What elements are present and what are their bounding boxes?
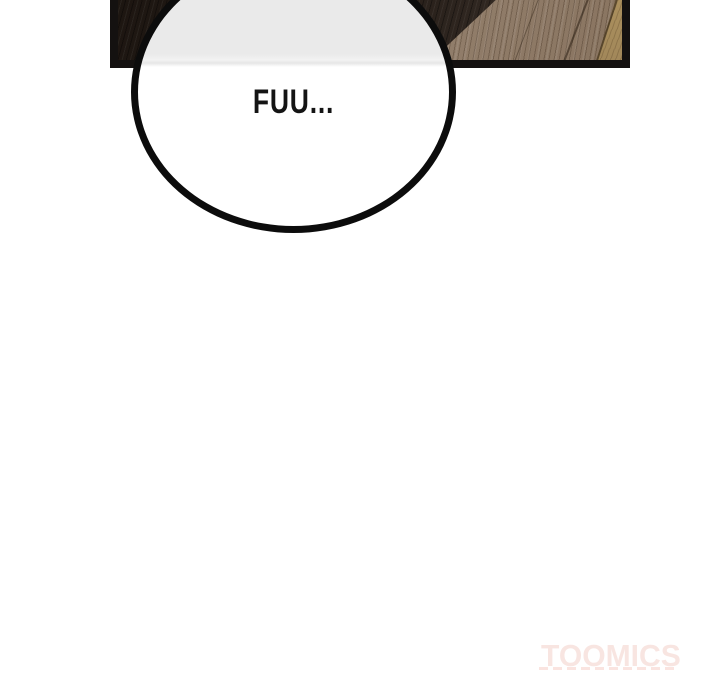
comic-page-canvas[interactable]: FUU... TOOMICS (0, 0, 720, 700)
speech-bubble: FUU... (131, 0, 456, 233)
speech-bubble-text: FUU... (172, 86, 415, 118)
watermark-subline (539, 667, 679, 670)
